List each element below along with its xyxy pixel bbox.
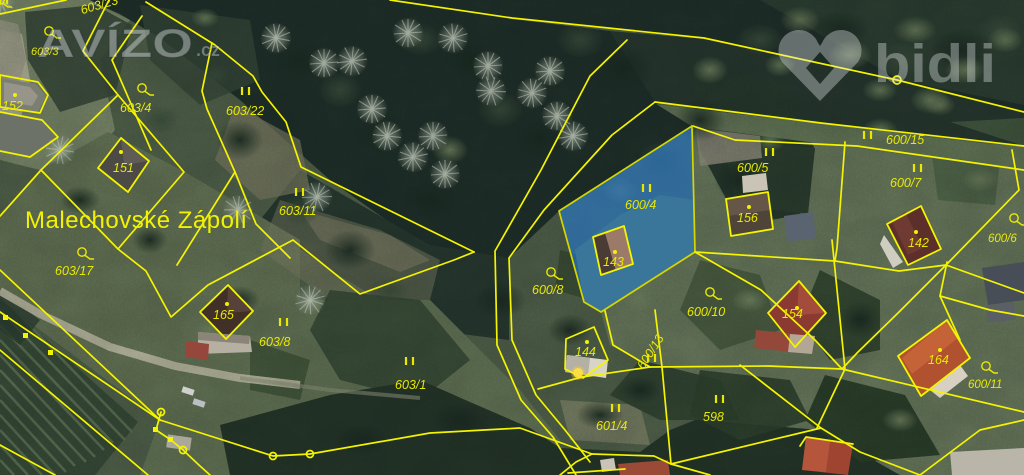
svg-text:.cz: .cz xyxy=(196,40,220,60)
svg-text:600/11: 600/11 xyxy=(968,379,1002,391)
svg-text:598: 598 xyxy=(703,410,724,424)
svg-text:600/6: 600/6 xyxy=(988,233,1017,245)
svg-text:152: 152 xyxy=(2,99,23,113)
svg-text:154: 154 xyxy=(782,307,803,321)
svg-text:603/11: 603/11 xyxy=(279,204,316,218)
svg-text:600/4: 600/4 xyxy=(625,198,656,212)
svg-text:600/5: 600/5 xyxy=(737,161,768,175)
svg-text:603/17: 603/17 xyxy=(55,264,94,278)
svg-text:603/1: 603/1 xyxy=(395,378,426,392)
svg-text:603/4: 603/4 xyxy=(120,101,151,115)
svg-text:bidli: bidli xyxy=(874,34,996,94)
svg-text:603/8: 603/8 xyxy=(259,335,290,349)
svg-text:142: 142 xyxy=(908,236,929,250)
svg-text:164: 164 xyxy=(928,353,949,367)
svg-text:603/22: 603/22 xyxy=(226,104,264,118)
svg-text:165: 165 xyxy=(213,308,234,322)
svg-text:600/8: 600/8 xyxy=(532,283,563,297)
svg-text:AVÍZO: AVÍZO xyxy=(37,21,193,66)
svg-text:600/7: 600/7 xyxy=(890,176,922,190)
svg-text:156: 156 xyxy=(737,211,758,225)
svg-text:601/4: 601/4 xyxy=(596,419,627,433)
svg-text:Malechovské Zápolí: Malechovské Zápolí xyxy=(25,207,247,234)
svg-text:600/15: 600/15 xyxy=(886,133,924,147)
svg-text:600/10: 600/10 xyxy=(687,305,725,319)
svg-text:143: 143 xyxy=(603,255,624,269)
svg-text:151: 151 xyxy=(113,161,134,175)
svg-text:144: 144 xyxy=(575,345,596,359)
